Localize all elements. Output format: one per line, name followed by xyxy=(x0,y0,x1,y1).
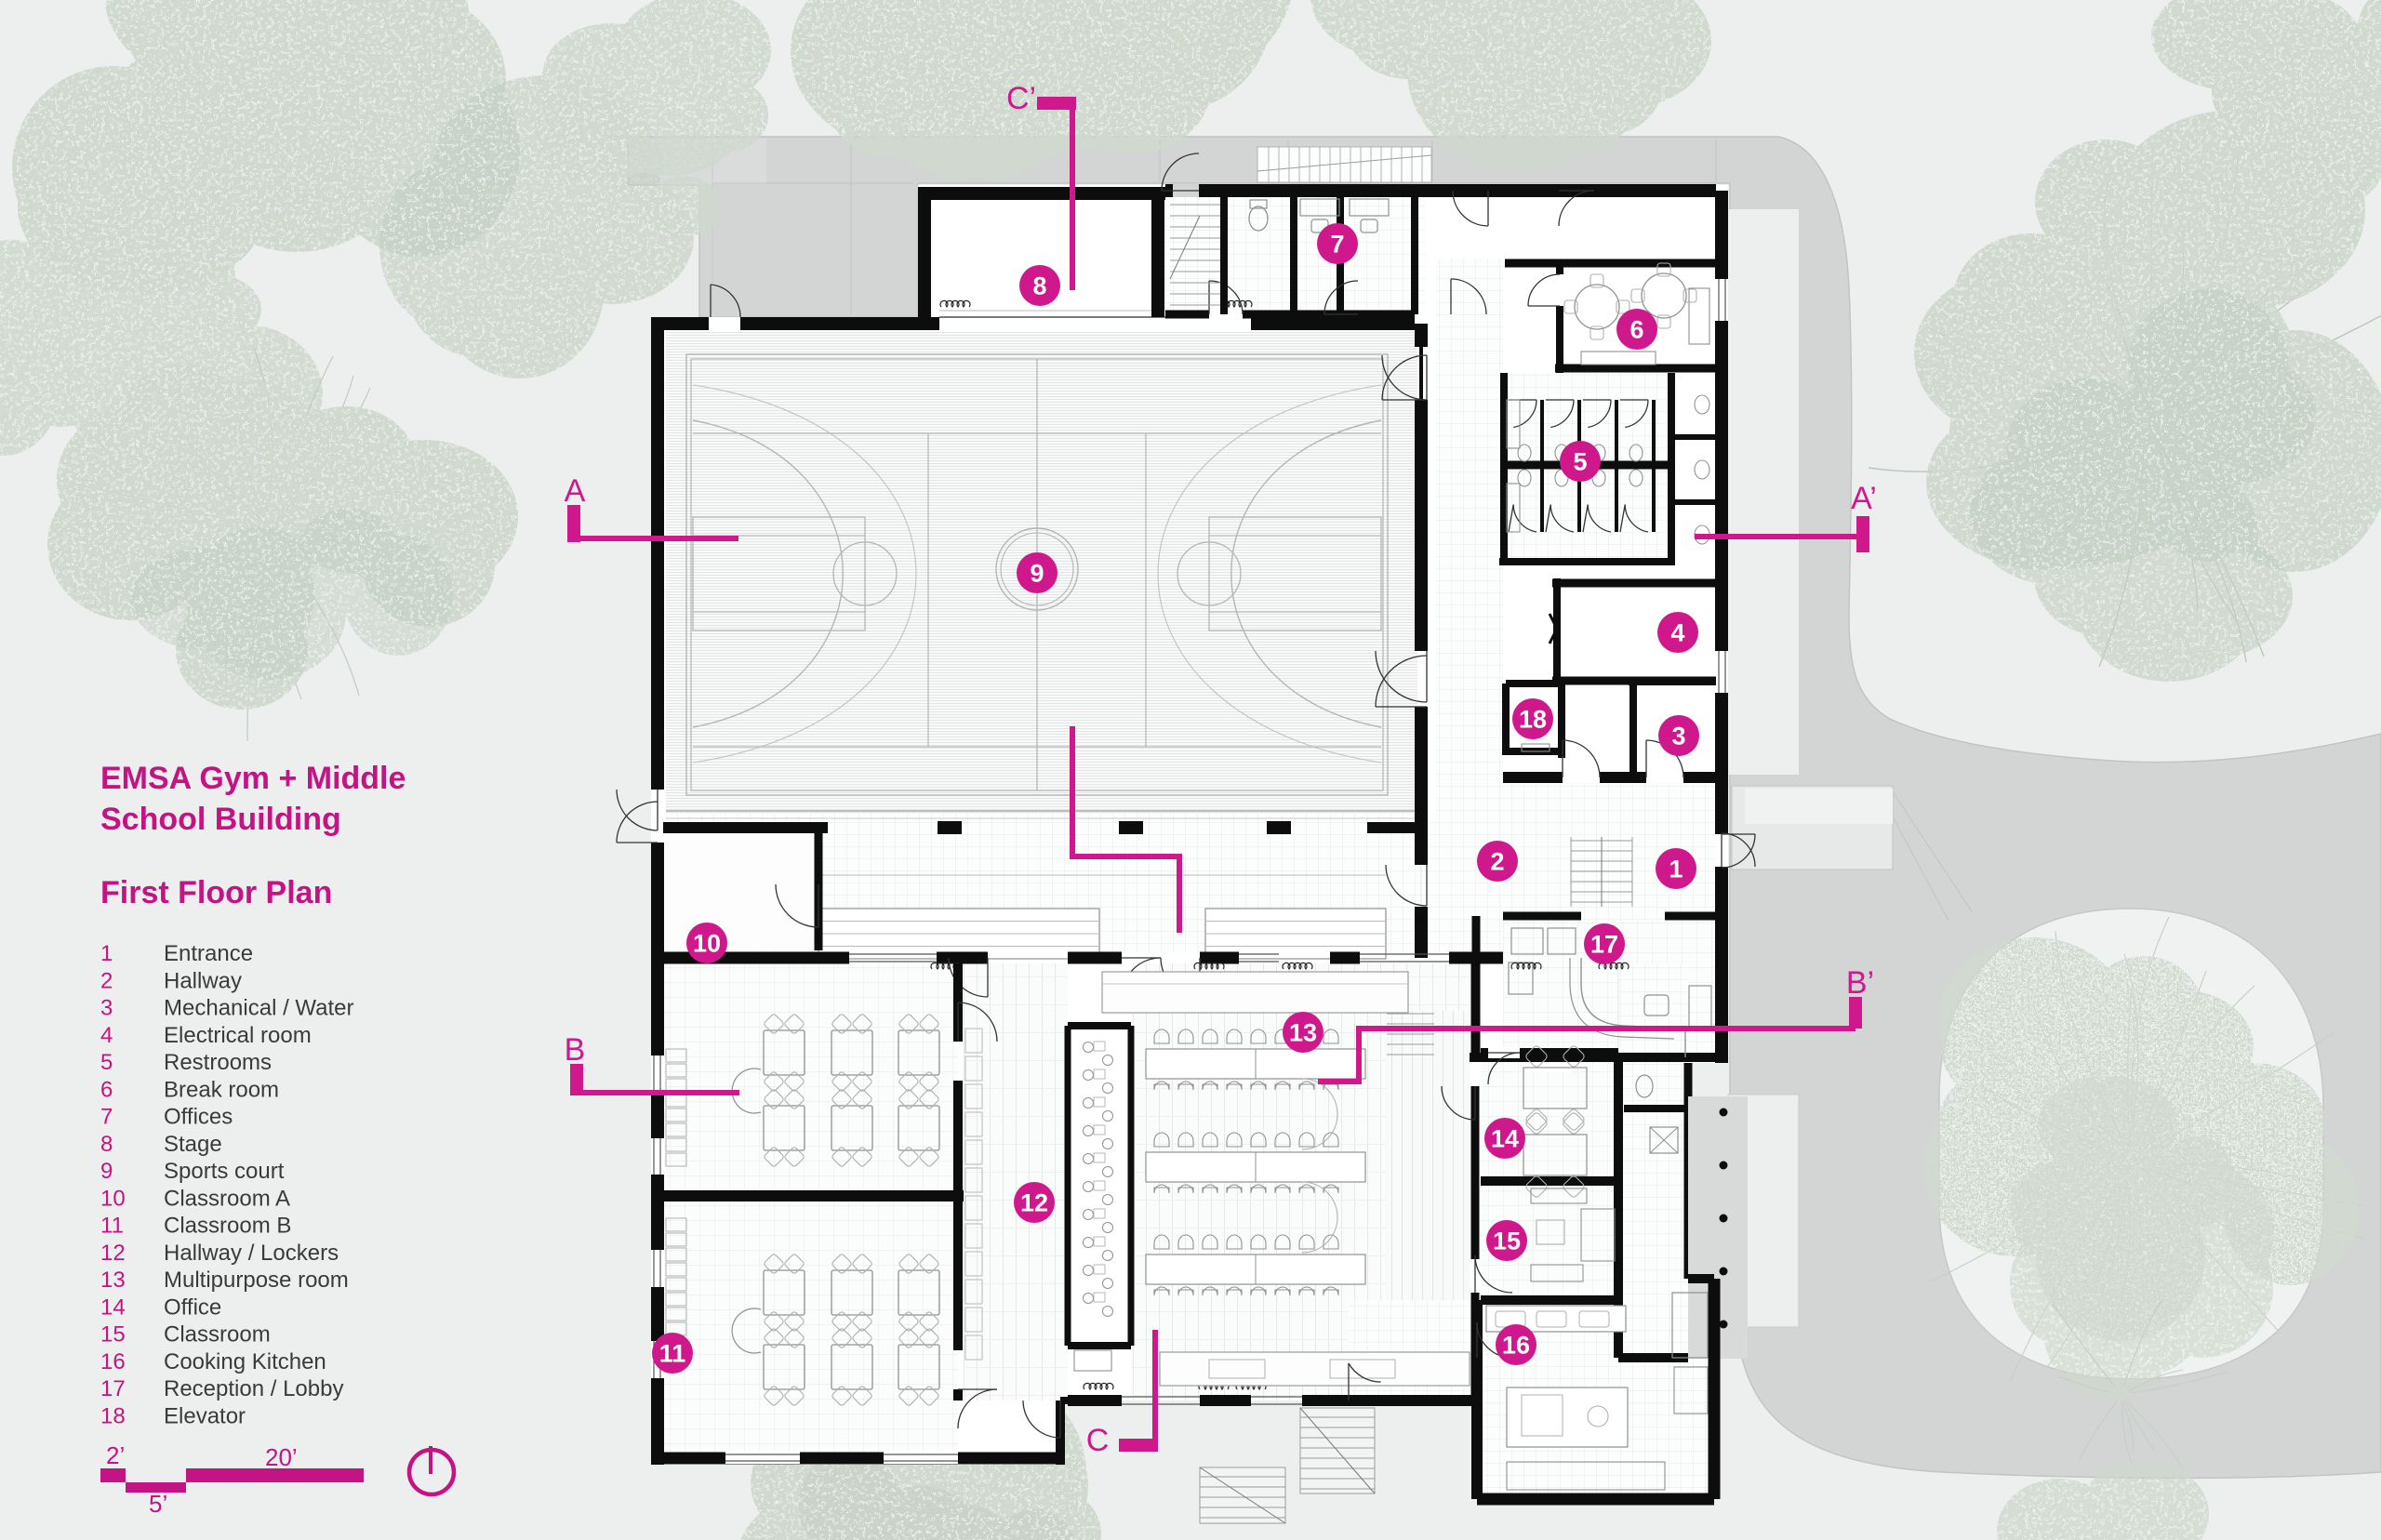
svg-text:Entrance: Entrance xyxy=(164,941,253,966)
svg-text:8: 8 xyxy=(100,1132,113,1157)
svg-text:4: 4 xyxy=(100,1023,113,1048)
svg-text:Cooking Kitchen: Cooking Kitchen xyxy=(164,1349,326,1374)
svg-text:1: 1 xyxy=(100,941,113,966)
svg-text:A: A xyxy=(565,473,586,509)
svg-text:5: 5 xyxy=(1573,448,1587,476)
svg-text:16: 16 xyxy=(100,1349,126,1374)
svg-text:2: 2 xyxy=(1490,848,1504,876)
svg-text:5: 5 xyxy=(100,1050,113,1075)
svg-text:15: 15 xyxy=(1493,1228,1521,1255)
svg-text:School Building: School Building xyxy=(100,802,341,837)
svg-text:13: 13 xyxy=(1289,1019,1317,1047)
svg-text:EMSA Gym + Middle: EMSA Gym + Middle xyxy=(100,761,406,796)
svg-text:17: 17 xyxy=(1590,931,1618,959)
svg-text:Classroom: Classroom xyxy=(164,1322,271,1347)
svg-text:7: 7 xyxy=(100,1105,113,1130)
svg-text:Stage: Stage xyxy=(164,1132,222,1157)
svg-text:Reception / Lobby: Reception / Lobby xyxy=(164,1376,343,1401)
svg-text:6: 6 xyxy=(1629,316,1643,344)
svg-text:Classroom A: Classroom A xyxy=(164,1186,290,1211)
svg-text:Hallway: Hallway xyxy=(164,968,242,993)
svg-text:Restrooms: Restrooms xyxy=(164,1050,272,1075)
svg-text:C: C xyxy=(1086,1423,1110,1458)
svg-text:A’: A’ xyxy=(1851,481,1877,516)
svg-text:B’: B’ xyxy=(1846,965,1874,1001)
svg-text:20’: 20’ xyxy=(265,1443,298,1471)
svg-text:18: 18 xyxy=(100,1403,126,1428)
svg-text:12: 12 xyxy=(1020,1189,1048,1217)
svg-text:6: 6 xyxy=(100,1077,113,1102)
svg-text:11: 11 xyxy=(659,1340,686,1368)
svg-text:Mechanical / Water: Mechanical / Water xyxy=(164,996,354,1021)
svg-text:8: 8 xyxy=(1032,272,1046,300)
svg-text:12: 12 xyxy=(100,1241,126,1266)
svg-text:2’: 2’ xyxy=(106,1441,125,1469)
svg-text:15: 15 xyxy=(100,1322,126,1347)
svg-text:14: 14 xyxy=(100,1294,126,1320)
svg-text:18: 18 xyxy=(1519,706,1547,734)
svg-text:17: 17 xyxy=(100,1376,126,1401)
svg-text:Multipurpose room: Multipurpose room xyxy=(164,1268,349,1293)
svg-text:Classroom B: Classroom B xyxy=(164,1214,291,1239)
svg-text:First Floor Plan: First Floor Plan xyxy=(100,875,332,910)
svg-text:10: 10 xyxy=(100,1186,126,1211)
svg-text:Hallway / Lockers: Hallway / Lockers xyxy=(164,1241,339,1266)
svg-text:Elevator: Elevator xyxy=(164,1403,246,1428)
svg-text:Office: Office xyxy=(164,1294,221,1320)
svg-text:Electrical room: Electrical room xyxy=(164,1023,312,1048)
svg-text:5’: 5’ xyxy=(149,1490,167,1518)
svg-text:3: 3 xyxy=(1671,723,1685,750)
svg-text:3: 3 xyxy=(100,996,113,1021)
svg-text:Break room: Break room xyxy=(164,1077,279,1102)
svg-text:14: 14 xyxy=(1491,1125,1519,1153)
svg-text:C’: C’ xyxy=(1006,81,1036,116)
svg-text:16: 16 xyxy=(1502,1332,1530,1360)
svg-text:Sports court: Sports court xyxy=(164,1159,285,1184)
svg-text:11: 11 xyxy=(100,1214,124,1239)
svg-text:B: B xyxy=(565,1032,586,1068)
svg-text:2: 2 xyxy=(100,968,113,993)
svg-text:4: 4 xyxy=(1670,619,1684,647)
svg-text:13: 13 xyxy=(100,1268,126,1293)
svg-text:9: 9 xyxy=(100,1159,113,1184)
svg-text:10: 10 xyxy=(693,930,721,958)
svg-text:Offices: Offices xyxy=(164,1105,233,1130)
svg-text:1: 1 xyxy=(1669,856,1683,883)
svg-text:7: 7 xyxy=(1330,231,1344,259)
svg-text:9: 9 xyxy=(1030,560,1044,588)
